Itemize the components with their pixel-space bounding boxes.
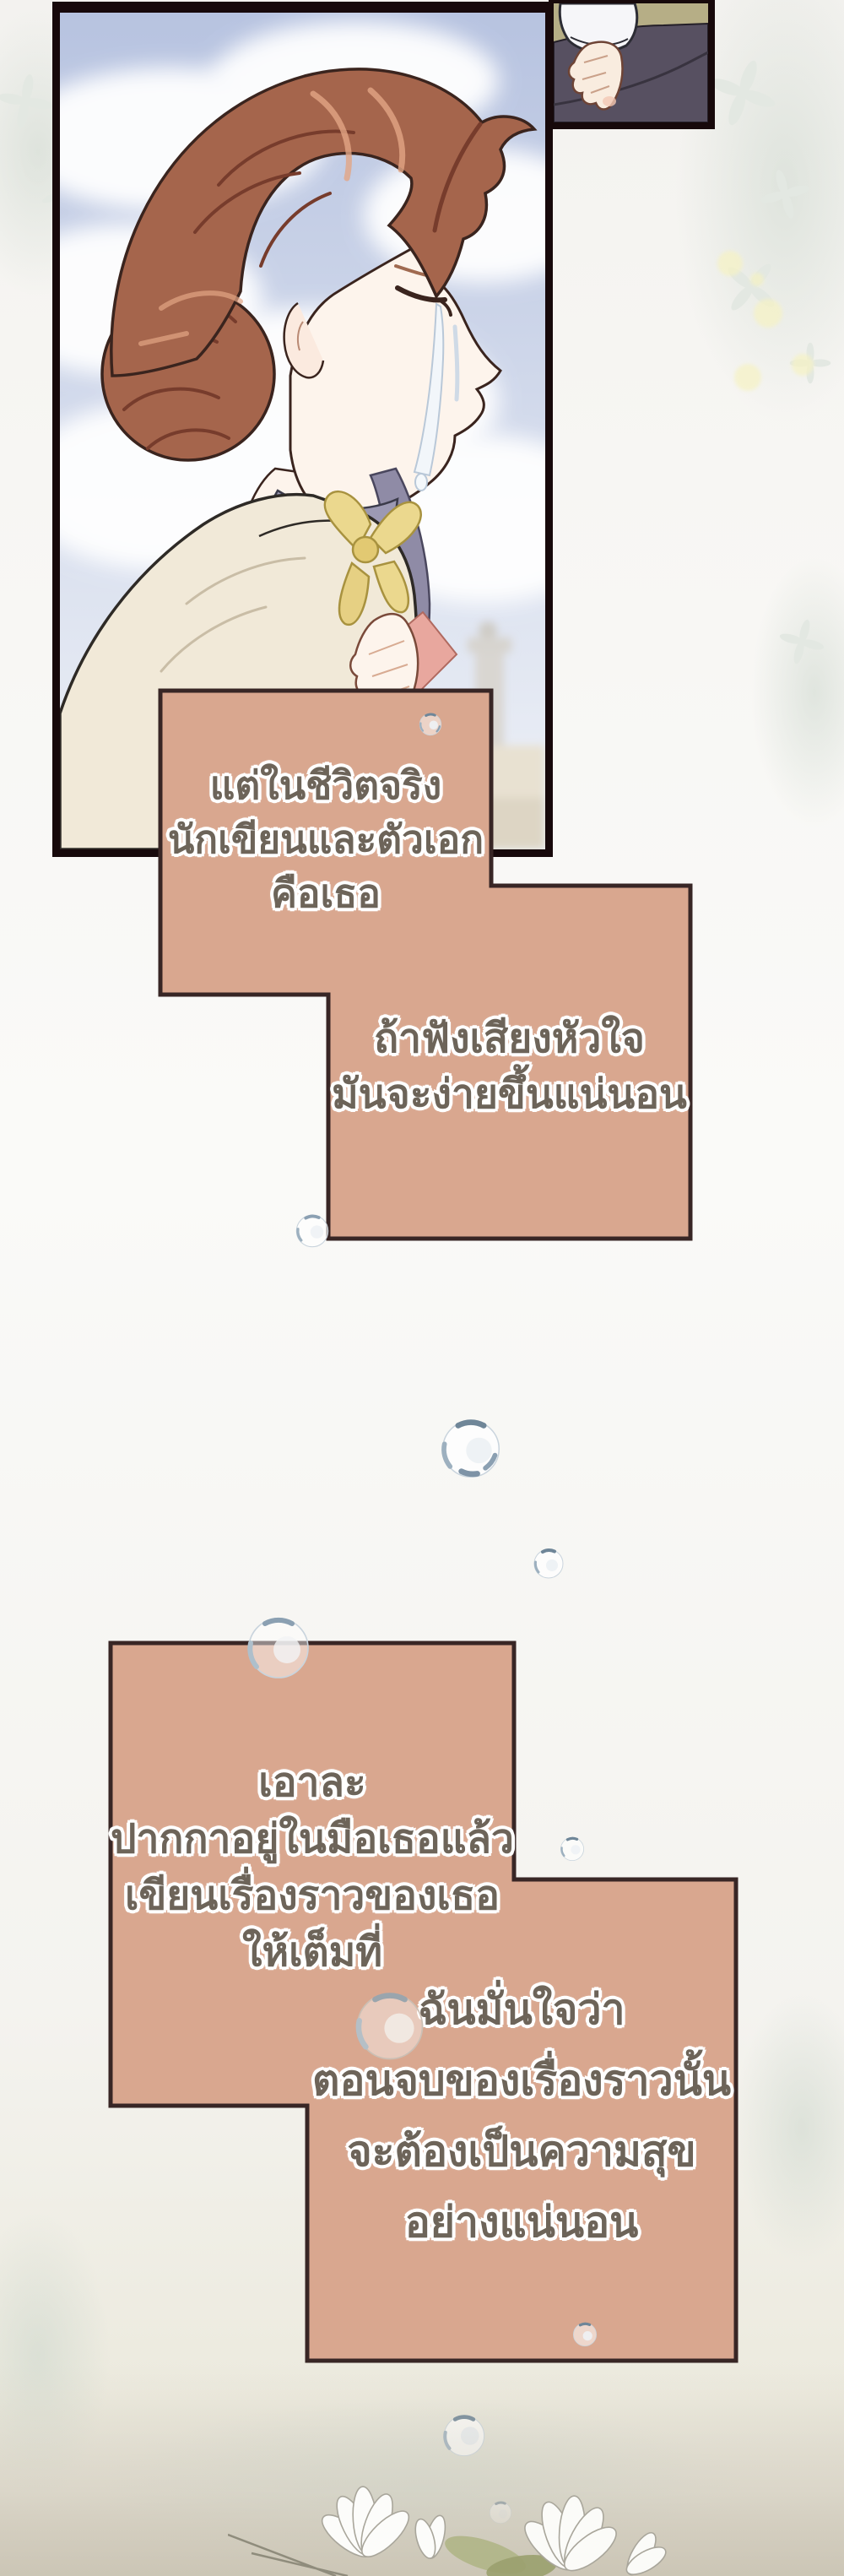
water-droplet <box>294 1212 331 1250</box>
speech-line: ให้เต็มที่ <box>111 1924 514 1981</box>
speech-line: ถ้าฟังเสียงหัวใจ <box>328 1011 690 1067</box>
white-lilies <box>228 2474 667 2576</box>
speech-line: คือเธอ <box>160 866 491 920</box>
water-droplet <box>559 1836 586 1863</box>
flower-stems <box>228 2535 348 2576</box>
lily-flower <box>316 2486 448 2564</box>
speech-line: จะต้องเป็นความสุข <box>307 2116 736 2187</box>
water-droplet <box>245 1614 312 1682</box>
speech-line: เขียนเรื่องราวของเธอ <box>111 1868 514 1924</box>
bokeh-dot <box>792 354 814 376</box>
background-floral-watermark <box>734 1993 844 2263</box>
bokeh-dot <box>754 299 782 328</box>
tear-drop <box>415 474 427 491</box>
speech-line: ปากกาอยู่ในมือเธอแล้ว <box>111 1811 514 1868</box>
water-droplet <box>418 712 443 737</box>
bokeh-dot <box>734 364 761 391</box>
speech-text-1a: แต่ในชีวิตจริง นักเขียนและตัวเอก คือเธอ <box>160 758 491 920</box>
water-droplet <box>439 1417 503 1481</box>
speech-text-2a: เอาละ ปากกาอยู่ในมือเธอแล้ว เขียนเรื่องร… <box>111 1754 514 1981</box>
water-droplet <box>353 1989 427 2064</box>
illustration-hand-on-lap <box>554 3 708 122</box>
water-droplet <box>441 2413 487 2459</box>
speech-line: มันจะง่ายขึ้นแน่นอน <box>328 1067 690 1123</box>
bokeh-dot <box>717 251 743 276</box>
webtoon-page: แต่ในชีวิตจริง นักเขียนและตัวเอก คือเธอ … <box>0 0 844 2576</box>
speech-line: นักเขียนและตัวเอก <box>160 812 491 866</box>
bokeh-dot <box>750 273 764 286</box>
speech-line: อย่างแน่นอน <box>307 2187 736 2258</box>
speech-text-1b: ถ้าฟังเสียงหัวใจ มันจะง่ายขึ้นแน่นอน <box>328 1011 690 1123</box>
water-droplet <box>571 2321 598 2348</box>
speech-line: แต่ในชีวิตจริง <box>160 758 491 812</box>
panel-hand-on-lap <box>549 0 715 129</box>
background-floral-watermark <box>0 2212 110 2499</box>
speech-line: เอาละ <box>111 1754 514 1811</box>
water-droplet <box>532 1547 565 1581</box>
